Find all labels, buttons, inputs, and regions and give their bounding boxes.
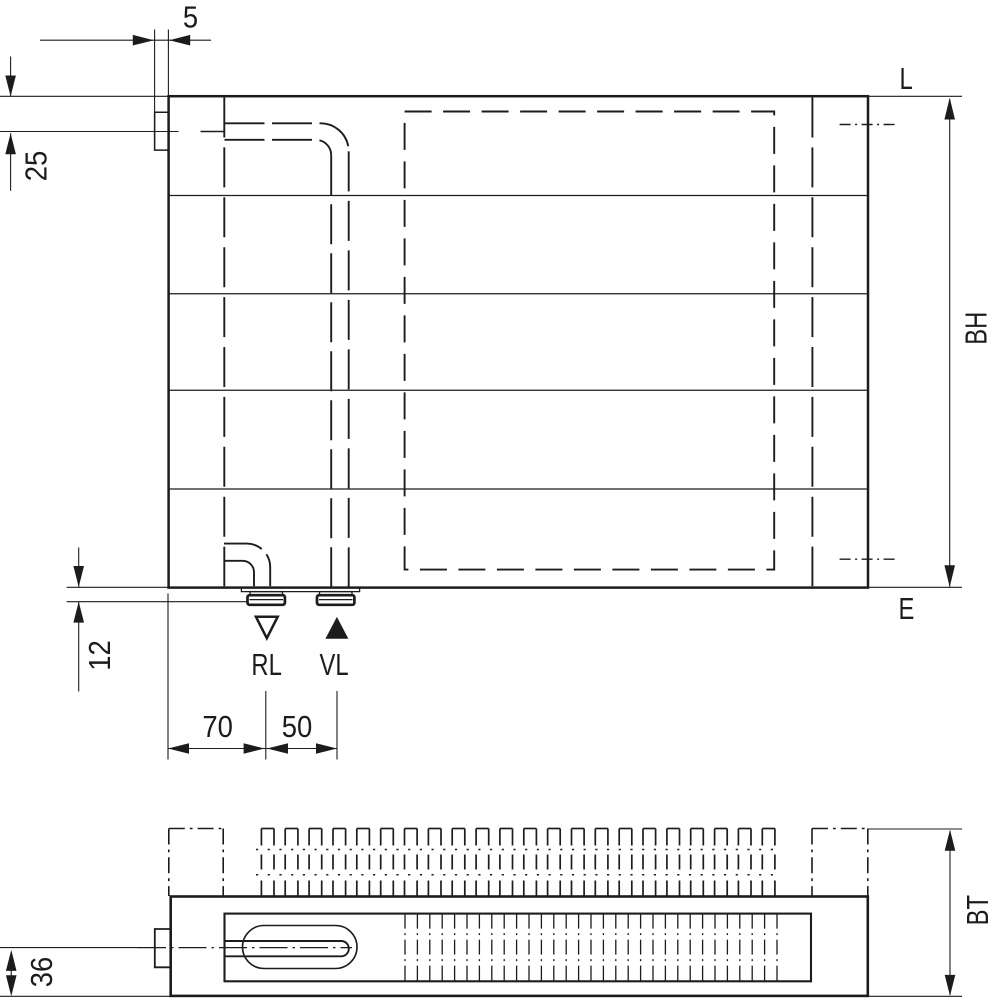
svg-text:70: 70 (202, 711, 233, 745)
svg-text:RL: RL (251, 647, 281, 682)
svg-text:5: 5 (183, 1, 198, 35)
svg-text:25: 25 (20, 151, 54, 182)
svg-text:50: 50 (282, 711, 313, 745)
svg-text:12: 12 (84, 640, 118, 671)
svg-text:BT: BT (960, 895, 995, 926)
svg-text:E: E (899, 591, 915, 626)
svg-text:BH: BH (959, 312, 994, 345)
svg-text:L: L (900, 61, 913, 96)
svg-text:VL: VL (319, 647, 348, 682)
svg-text:36: 36 (26, 957, 60, 988)
